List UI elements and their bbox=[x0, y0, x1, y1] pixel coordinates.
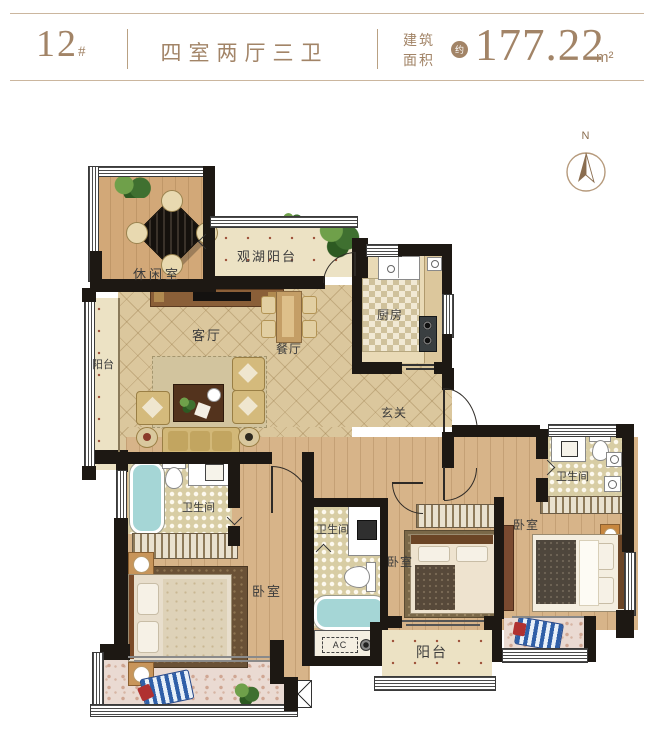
sink-basin bbox=[357, 520, 377, 540]
pillow bbox=[137, 621, 159, 653]
right-bed bbox=[532, 534, 626, 612]
dining-chair bbox=[261, 320, 276, 338]
throw-pillow bbox=[142, 397, 163, 418]
dining-chair bbox=[302, 320, 317, 338]
bath-sink bbox=[551, 436, 586, 462]
window bbox=[90, 704, 298, 717]
table-plant-icon bbox=[178, 395, 196, 413]
side-table bbox=[238, 427, 260, 447]
window bbox=[92, 652, 104, 712]
duvet bbox=[163, 579, 227, 657]
wall bbox=[82, 466, 96, 480]
window bbox=[366, 244, 402, 257]
wall bbox=[352, 362, 402, 374]
wall bbox=[386, 616, 402, 628]
toilet bbox=[165, 467, 183, 489]
wall bbox=[116, 450, 128, 472]
washer bbox=[606, 452, 622, 467]
tv bbox=[193, 292, 251, 301]
cabinet-box bbox=[154, 292, 164, 302]
unit-number-value: 12 bbox=[36, 23, 78, 65]
room-living-label: 客厅 bbox=[192, 325, 222, 344]
sink-basin bbox=[205, 464, 224, 481]
room-master-bedroom-label: 卧室 bbox=[252, 581, 282, 600]
room-master-bath-label: 卫生间 bbox=[182, 499, 215, 515]
door-leaf bbox=[443, 467, 445, 500]
sofa-cushion bbox=[190, 431, 210, 451]
flower-pot bbox=[245, 433, 253, 441]
floorplan-page: { "header": { "unit_number": "12", "unit… bbox=[0, 0, 655, 737]
wall bbox=[228, 526, 240, 546]
washer-door bbox=[610, 455, 619, 464]
window bbox=[92, 166, 212, 177]
window bbox=[624, 552, 636, 616]
wall bbox=[536, 478, 548, 502]
bed-runner bbox=[579, 540, 599, 606]
wall bbox=[452, 425, 540, 437]
wall bbox=[352, 276, 362, 374]
coffee-table bbox=[173, 384, 224, 422]
pillow bbox=[456, 546, 488, 562]
sink-basin bbox=[561, 441, 578, 457]
dining-chair bbox=[261, 296, 276, 314]
wall bbox=[126, 452, 272, 464]
bathtub bbox=[130, 462, 164, 534]
appliance bbox=[604, 476, 621, 492]
sliding-door bbox=[402, 364, 434, 366]
wall bbox=[492, 626, 502, 662]
sofa-cushion bbox=[168, 431, 188, 451]
wall bbox=[494, 497, 504, 619]
wall bbox=[370, 622, 382, 664]
armchair bbox=[232, 357, 265, 391]
door-leaf bbox=[392, 482, 423, 484]
middle-bed bbox=[410, 534, 496, 614]
room-leisure-label: 休闲室 bbox=[133, 264, 181, 283]
wall bbox=[212, 276, 325, 289]
wall bbox=[314, 498, 386, 507]
room-right-bath-label: 卫生间 bbox=[556, 468, 589, 484]
pillow bbox=[418, 546, 450, 562]
lamp bbox=[133, 556, 150, 573]
room-foyer-label: 玄关 bbox=[381, 404, 407, 421]
window bbox=[84, 300, 95, 470]
kitchen-sink bbox=[378, 256, 420, 280]
master-bed bbox=[128, 574, 232, 662]
side-table bbox=[136, 427, 158, 448]
room-middle-bath-label: 卫生间 bbox=[316, 521, 349, 537]
area-unit: m² bbox=[596, 49, 614, 66]
door-leaf bbox=[443, 388, 445, 433]
wall bbox=[284, 677, 298, 711]
header-top-rule bbox=[10, 13, 644, 14]
armchair bbox=[136, 391, 170, 425]
table-runner bbox=[282, 296, 294, 337]
pillow bbox=[137, 583, 159, 615]
sliding-door bbox=[406, 624, 480, 626]
wall bbox=[114, 518, 128, 648]
duvet bbox=[415, 565, 455, 610]
wall bbox=[616, 610, 634, 638]
wall bbox=[622, 432, 634, 552]
header-divider-2 bbox=[377, 29, 378, 69]
wall bbox=[203, 166, 215, 212]
dining-chair bbox=[302, 296, 317, 314]
tray bbox=[207, 388, 221, 402]
sliding-door bbox=[402, 620, 484, 622]
wall bbox=[442, 432, 454, 468]
window bbox=[502, 648, 588, 663]
compass-icon bbox=[556, 142, 616, 198]
approx-badge: 约 bbox=[451, 41, 468, 58]
area-label-line1: 建筑 bbox=[403, 31, 435, 51]
room-kitchen-label: 厨房 bbox=[377, 306, 403, 323]
unit-hash: # bbox=[78, 44, 86, 60]
leisure-chair bbox=[161, 190, 183, 212]
wall bbox=[100, 644, 130, 660]
sliding-door bbox=[128, 656, 284, 658]
window bbox=[548, 424, 624, 437]
bath-sink bbox=[348, 502, 384, 556]
area-label-line2: 面积 bbox=[403, 51, 435, 71]
room-dining-label: 餐厅 bbox=[276, 340, 302, 357]
wall bbox=[270, 640, 284, 684]
wall bbox=[442, 254, 452, 294]
header-bottom-rule bbox=[10, 80, 644, 81]
pillow bbox=[513, 622, 527, 637]
wall bbox=[82, 288, 96, 302]
wall bbox=[442, 368, 454, 390]
toilet bbox=[344, 566, 370, 588]
dining-table bbox=[276, 291, 302, 343]
layout-title: 四室两厅三卫 bbox=[152, 37, 337, 67]
sink-divider bbox=[398, 257, 399, 278]
window bbox=[116, 470, 127, 522]
stove bbox=[419, 316, 437, 352]
compass-north-label: N bbox=[556, 130, 616, 142]
window bbox=[442, 294, 454, 338]
room-lake-balcony-label: 观湖阳台 bbox=[237, 246, 297, 265]
armchair bbox=[232, 390, 265, 424]
window bbox=[374, 676, 496, 691]
appliance-dial bbox=[608, 480, 617, 489]
balcony-sill bbox=[118, 298, 120, 452]
window bbox=[210, 216, 358, 228]
door-leaf bbox=[271, 466, 273, 513]
table-cloth bbox=[194, 402, 211, 419]
sliding-door bbox=[512, 616, 584, 618]
throw-pillow bbox=[238, 396, 258, 416]
leisure-chair bbox=[126, 222, 148, 244]
wall bbox=[302, 452, 314, 662]
room-middle-bedroom-label: 卧室 bbox=[387, 553, 413, 570]
ac-unit: AC bbox=[314, 630, 378, 659]
room-right-bedroom-label: 卧室 bbox=[513, 516, 539, 533]
room-bottom-balcony-label: 阳台 bbox=[416, 642, 448, 662]
heater-dial bbox=[431, 260, 439, 268]
unit-number: 12# bbox=[36, 22, 86, 66]
room-left-balcony-label: 阳台 bbox=[92, 356, 114, 372]
sink-basin bbox=[387, 265, 395, 273]
compass: N bbox=[556, 130, 616, 200]
header-divider-1 bbox=[127, 29, 128, 69]
area-value: 177.22 bbox=[475, 19, 605, 71]
burner bbox=[423, 321, 432, 330]
wall bbox=[536, 429, 548, 459]
water-heater bbox=[427, 257, 442, 271]
ac-label: AC bbox=[322, 637, 358, 653]
plant-icon bbox=[232, 680, 260, 706]
wardrobe bbox=[416, 504, 500, 528]
sliding-door bbox=[406, 368, 434, 370]
sliding-door bbox=[134, 660, 278, 662]
flower-pot bbox=[143, 433, 151, 441]
burner bbox=[423, 336, 432, 345]
sofa-cushion bbox=[212, 431, 232, 451]
wardrobe bbox=[540, 496, 624, 514]
nightstand bbox=[128, 552, 154, 576]
throw-pillow bbox=[238, 363, 258, 383]
duvet bbox=[536, 540, 576, 604]
headboard bbox=[411, 535, 493, 544]
area-label: 建筑 面积 bbox=[403, 31, 435, 70]
wall bbox=[228, 464, 240, 508]
